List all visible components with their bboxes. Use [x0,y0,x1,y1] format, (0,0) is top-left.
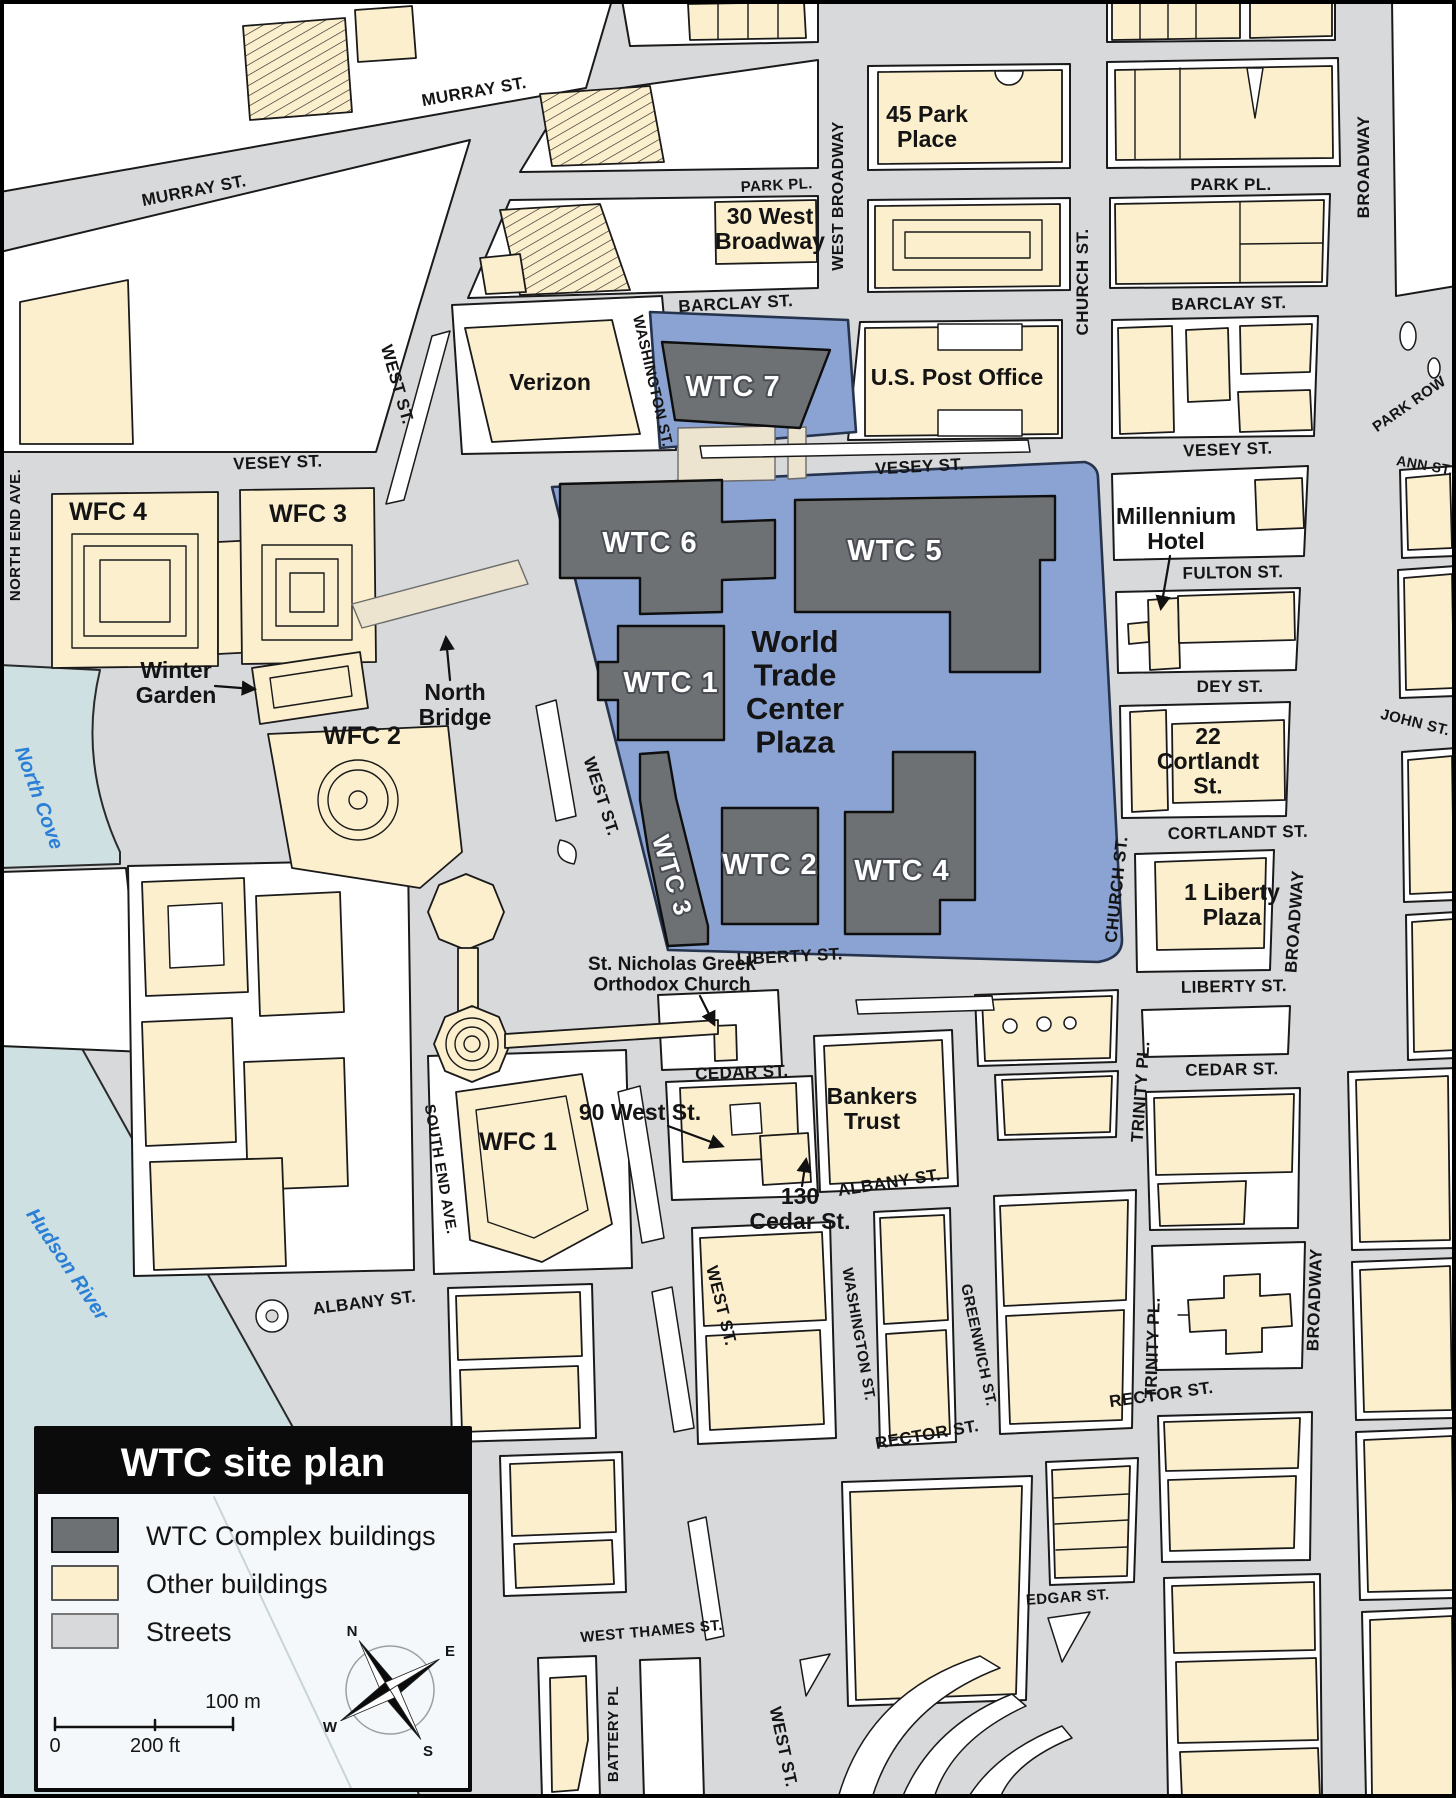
g-building-labels-4: WFC 4 [69,498,147,526]
building-wfc2 [268,726,462,888]
g-street-labels-36: BATTERY PL [605,1686,622,1782]
g-street-labels-13: VESEY ST. [1183,438,1273,460]
esplanade [0,868,146,1052]
legend-label-wtc: WTC Complex buildings [146,1521,436,1551]
g-building-labels-13: St. Nicholas GreekOrthodox Church [588,954,756,996]
g-street-labels-24: TRINITY PL. [1141,1297,1164,1399]
g-building-labels-7: NorthBridge [419,679,492,730]
wtc-site-plan-map: North CoveHudson River MURRAY ST.MURRAY … [0,0,1456,1798]
g-wtc-labels-3: WTC 1 [623,667,718,699]
compass-e: E [445,1643,455,1660]
g-street-labels-11: VESEY ST. [233,451,323,473]
scale-100m: 100 m [205,1691,261,1713]
g-wtc-labels-2: WTC 5 [847,535,942,567]
plaza-label: WorldTradeCenterPlaza [746,624,844,759]
g-street-labels-22: CEDAR ST. [1185,1059,1279,1080]
legend-label-other: Other buildings [146,1569,328,1599]
legend-swatch-wtc [52,1518,118,1552]
scale-0: 0 [49,1735,60,1757]
legend: WTC site plan WTC Complex buildings Othe… [36,1428,470,1790]
g-wtc-labels-0: WTC 7 [685,371,780,403]
g-building-labels-9: WFC 1 [479,1128,557,1156]
g-street-labels-6: WEST BROADWAY [830,121,847,271]
g-building-labels-2: 45 ParkPlace [886,101,968,152]
g-building-labels-3: 30 WestBroadway [715,203,825,254]
g-building-labels-1: U.S. Post Office [871,364,1044,390]
g-street-labels-18: CORTLANDT ST. [1168,822,1309,843]
compass-w: W [323,1719,338,1736]
legend-swatch-streets [52,1614,118,1648]
g-street-labels-5: BARCLAY ST. [1171,293,1286,314]
g-wtc-labels-5: WTC 4 [854,855,949,887]
legend-label-streets: Streets [146,1617,232,1647]
g-building-labels-8: WFC 2 [323,722,401,750]
g-street-labels-3: PARK PL. [1190,175,1271,194]
g-building-labels-5: WFC 3 [269,500,347,528]
g-street-labels-21: CEDAR ST. [695,1061,789,1083]
g-building-labels-15: 90 West St. [579,1099,701,1125]
wtc-plaza-label: WorldTradeCenterPlaza [746,624,844,759]
g-street-labels-15: FULTON ST. [1182,562,1283,583]
g-street-labels-16: DEY ST. [1197,677,1264,696]
g-street-labels-41: NORTH END AVE. [7,469,24,601]
g-building-labels-6: WinterGarden [136,657,217,708]
building-millennium-hotel [1148,598,1180,670]
g-street-labels-20: LIBERTY ST. [1181,976,1287,997]
compass-n: N [347,1623,358,1640]
g-wtc-labels-4: WTC 2 [722,849,817,881]
g-street-labels-7: CHURCH ST. [1073,229,1092,336]
legend-title: WTC site plan [121,1441,385,1485]
g-street-labels-27: BROADWAY [1303,1248,1326,1352]
compass-s: S [423,1743,433,1760]
legend-swatch-other [52,1566,118,1600]
g-wtc-labels-1: WTC 6 [602,527,697,559]
g-building-labels-0: Verizon [509,369,591,395]
scale-200ft: 200 ft [130,1735,180,1757]
g-street-labels-8: BROADWAY [1354,115,1373,218]
